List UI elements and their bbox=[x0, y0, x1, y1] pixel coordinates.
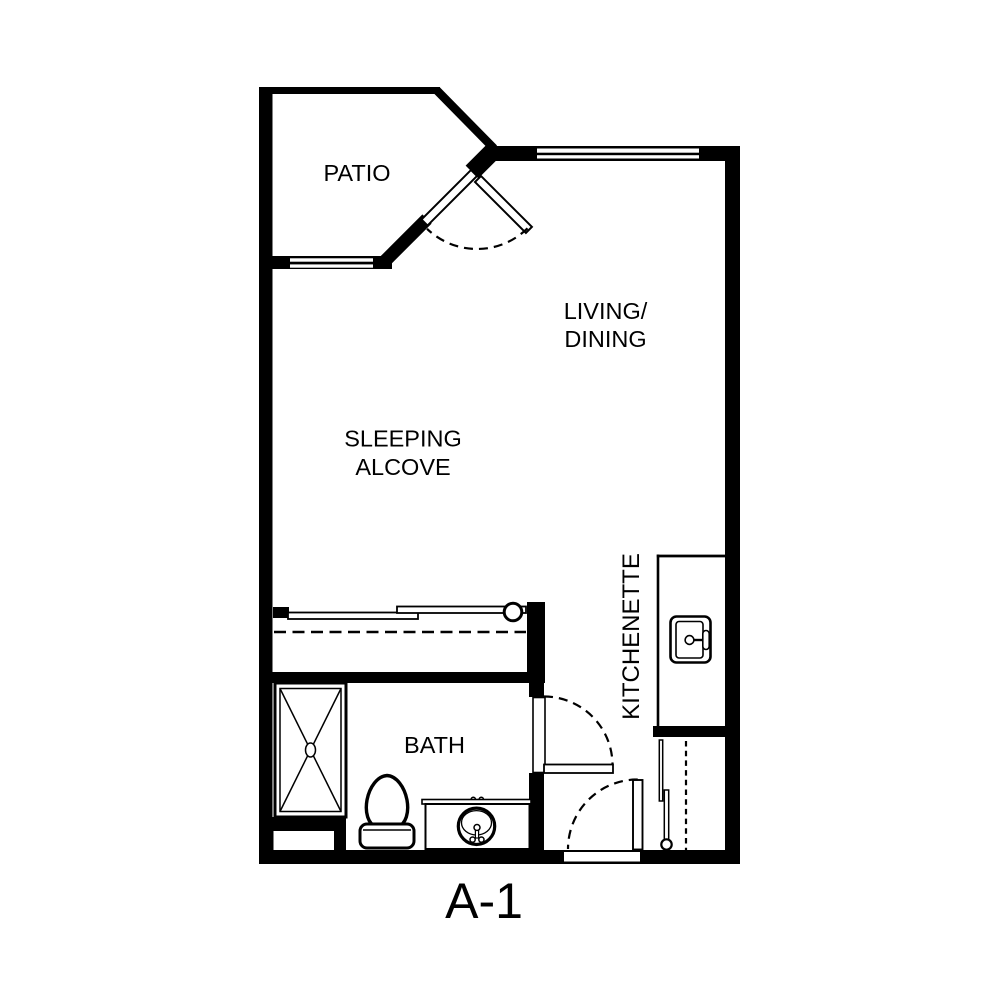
svg-text:KITCHENETTE: KITCHENETTE bbox=[618, 553, 645, 720]
svg-text:SLEEPING: SLEEPING bbox=[344, 426, 462, 452]
svg-text:PATIO: PATIO bbox=[323, 160, 390, 186]
svg-text:LIVING/: LIVING/ bbox=[564, 298, 648, 324]
svg-text:A-1: A-1 bbox=[445, 873, 523, 929]
svg-text:BATH: BATH bbox=[404, 732, 465, 758]
svg-text:ALCOVE: ALCOVE bbox=[355, 454, 450, 480]
svg-text:DINING: DINING bbox=[564, 326, 646, 352]
